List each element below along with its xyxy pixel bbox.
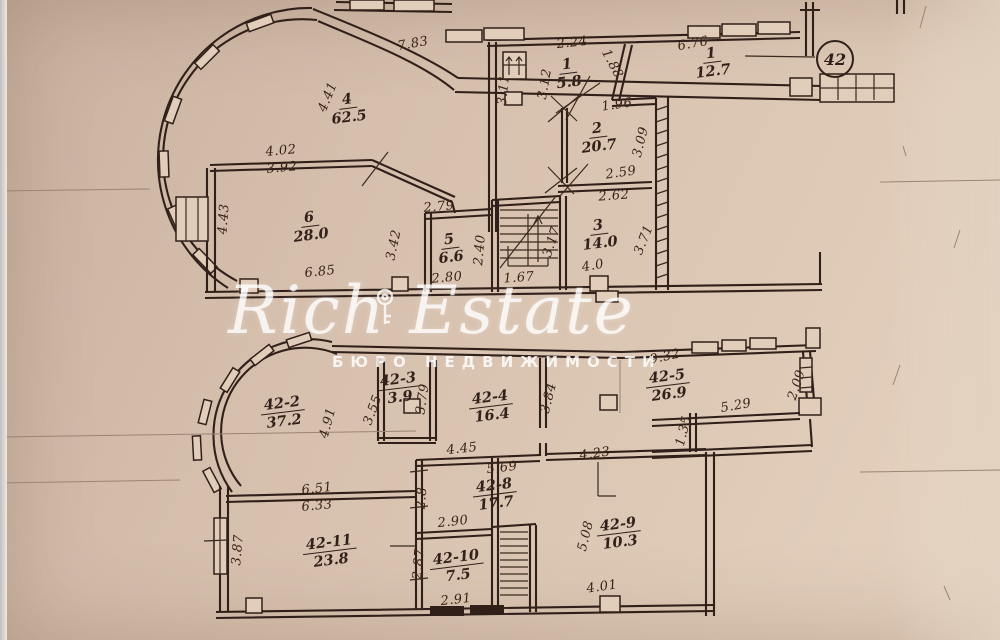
dimension-label: 2.90 [437,513,469,531]
dimension-label: 4.02 [265,142,297,160]
dimension-label: 4.43 [215,203,232,235]
dimension-label: 2.91 [440,591,472,609]
dimension-label: 3.92 [266,159,298,177]
dimension-label: 4.23 [579,444,612,463]
dimension-label: 3.11 [495,74,513,106]
label-layer: 462.515.8112.7220.7628.056.6314.07.832.2… [0,0,1000,640]
room-area: 20.7 [581,136,618,156]
dimension-label: 9.32 [648,346,681,367]
room-label: 42-910.3 [595,513,643,553]
room-area: 5.8 [556,72,583,91]
dimension-label: 2.40 [471,234,489,266]
dimension-label: 4.45 [446,440,478,458]
dimension-label: 6.33 [301,497,333,515]
room-label: 42-1123.8 [301,531,359,572]
dimension-label: 4.0 [581,257,605,276]
room-label: 42-416.4 [467,386,515,426]
dimension-label: 5.69 [486,459,518,477]
floor-plan-scan: 462.515.8112.7220.7628.056.6314.07.832.2… [0,0,1000,640]
apartment-number-badge: 42 [816,40,854,78]
dimension-label: 4.01 [586,577,619,596]
room-label: 15.8 [553,54,582,91]
dimension-label: 2.59 [605,163,638,182]
dimension-label: 6.51 [301,480,333,498]
dimension-label: 1.67 [503,269,535,286]
dimension-label: 3.42 [383,228,404,261]
room-area: 14.0 [582,233,619,253]
room-area: 12.7 [695,61,732,81]
dimension-label: 3.71 [631,223,657,257]
room-label: 220.7 [578,118,617,156]
dimension-label: 6.85 [304,263,336,281]
dimension-label: 2.24 [556,34,588,52]
room-label: 314.0 [579,215,618,253]
room-area: 62.5 [331,107,368,127]
dimension-label: 1.88 [598,47,626,81]
room-label: 56.6 [435,229,464,266]
room-label: 628.0 [290,207,329,245]
dimension-label: 2.80 [431,269,463,287]
dimension-label: 4.91 [317,406,340,440]
dimension-label: 1.96 [601,95,634,114]
dimension-label: 5.29 [719,396,752,416]
dimension-label: 2.87 [410,548,428,580]
dimension-label: 5.08 [575,519,597,553]
dimension-label: 2.79 [423,198,455,216]
room-label: 42-526.9 [644,365,692,405]
dimension-label: 2.09 [785,368,809,402]
dimension-label: 3.55 [361,393,386,427]
dimension-label: 3.87 [229,534,247,566]
dimension-label: 1.35 [673,414,695,448]
dimension-label: 3.09 [630,125,652,159]
scan-left-edge [0,0,7,640]
dimension-label: 3.84 [538,381,560,415]
room-label: 42-107.5 [428,546,486,587]
dimension-label: 2.8 [414,486,431,509]
dimension-label: 3.79 [413,383,432,416]
room-area: 6.6 [438,247,465,266]
room-label: 42-237.2 [259,392,307,432]
dimension-label: 3.17 [540,225,564,259]
dimension-label: 2.62 [598,187,630,204]
room-label: 42-817.7 [471,474,519,514]
dimension-label: 7.83 [396,34,429,54]
dimension-label: 3.12 [535,67,555,100]
room-area: 28.0 [293,225,330,245]
